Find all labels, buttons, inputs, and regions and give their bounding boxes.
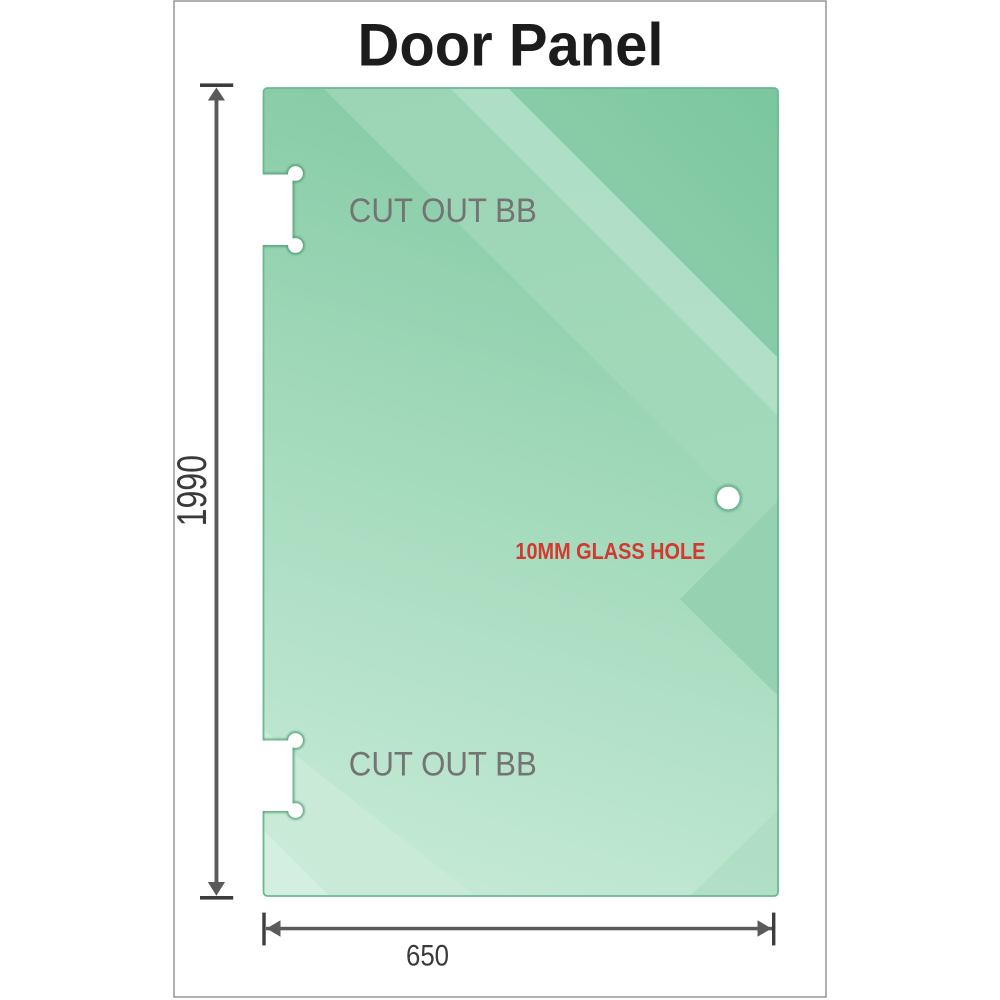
svg-text:1990: 1990	[168, 455, 215, 526]
svg-text:650: 650	[406, 940, 449, 973]
svg-text:CUT OUT BB: CUT OUT BB	[349, 192, 537, 230]
svg-text:CUT OUT BB: CUT OUT BB	[349, 746, 537, 784]
svg-text:10MM GLASS HOLE: 10MM GLASS HOLE	[515, 538, 705, 564]
svg-text:Door Panel: Door Panel	[358, 12, 664, 79]
